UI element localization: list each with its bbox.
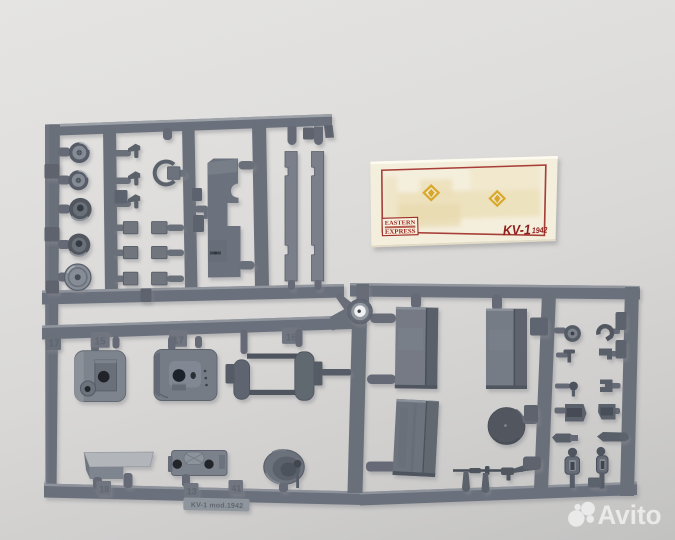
svg-text:17: 17: [49, 339, 61, 350]
svg-text:41: 41: [231, 484, 241, 494]
svg-text:18: 18: [99, 485, 109, 495]
svg-text:1942: 1942: [532, 226, 548, 236]
svg-text:KV-1: KV-1: [503, 221, 532, 238]
svg-text:15: 15: [95, 337, 107, 348]
svg-text:EXPRESS: EXPRESS: [385, 228, 416, 236]
svg-text:13: 13: [187, 487, 197, 497]
svg-text:KV-1 mod.1942: KV-1 mod.1942: [191, 502, 244, 510]
svg-text:Avito: Avito: [598, 500, 662, 530]
